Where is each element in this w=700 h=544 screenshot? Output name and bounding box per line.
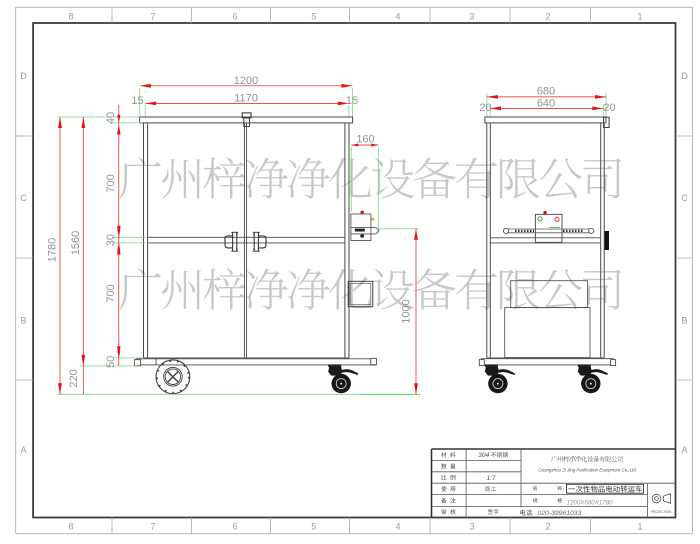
svg-text:30: 30 [105, 234, 117, 246]
svg-text:8: 8 [68, 11, 73, 21]
svg-text:D: D [681, 71, 688, 81]
svg-text:7: 7 [150, 522, 155, 532]
svg-text:B: B [20, 316, 26, 326]
svg-text:1170: 1170 [234, 93, 258, 105]
svg-text:Guangzhou Zi Jing Purification: Guangzhou Zi Jing Purification Equipment… [538, 468, 636, 473]
svg-text:640: 640 [537, 98, 555, 110]
svg-text:6: 6 [232, 11, 237, 21]
svg-text:1000: 1000 [401, 299, 413, 323]
svg-text:304: 304 [478, 452, 490, 459]
svg-text:5: 5 [311, 522, 316, 532]
svg-text:20: 20 [603, 102, 615, 114]
svg-text:1:7: 1:7 [486, 475, 495, 482]
svg-text:5: 5 [311, 11, 316, 21]
svg-text:2: 2 [545, 522, 550, 532]
svg-text:160: 160 [356, 133, 374, 145]
svg-text:3: 3 [469, 522, 474, 532]
svg-text:7: 7 [150, 11, 155, 21]
svg-text:15: 15 [131, 95, 143, 107]
svg-text:15: 15 [346, 95, 358, 107]
svg-text:220: 220 [68, 369, 80, 387]
svg-text:020-39961033: 020-39961033 [538, 510, 582, 517]
svg-text:700: 700 [105, 174, 117, 192]
svg-text:C: C [20, 193, 27, 203]
svg-text:1: 1 [637, 522, 642, 532]
svg-text:6: 6 [232, 522, 237, 532]
svg-text:D: D [20, 71, 27, 81]
svg-text:2: 2 [545, 11, 550, 21]
svg-text:1200X680X1780: 1200X680X1780 [567, 500, 614, 507]
svg-text:3: 3 [469, 11, 474, 21]
svg-text:1200: 1200 [234, 75, 258, 87]
svg-text:700: 700 [105, 284, 117, 302]
svg-text:B: B [681, 316, 687, 326]
svg-text:A: A [681, 445, 687, 455]
svg-text:20: 20 [479, 102, 491, 114]
svg-text:C: C [681, 193, 688, 203]
svg-text:1780: 1780 [47, 238, 59, 262]
svg-text:4: 4 [395, 11, 400, 21]
svg-text:1560: 1560 [70, 231, 82, 255]
svg-text:8: 8 [68, 522, 73, 532]
svg-text:50: 50 [105, 356, 117, 368]
svg-text:4: 4 [395, 522, 400, 532]
svg-text:PROJECTION: PROJECTION [651, 510, 672, 514]
svg-text:680: 680 [537, 86, 555, 98]
svg-text:1: 1 [637, 11, 642, 21]
svg-text:40: 40 [105, 112, 117, 124]
svg-text:A: A [20, 445, 26, 455]
